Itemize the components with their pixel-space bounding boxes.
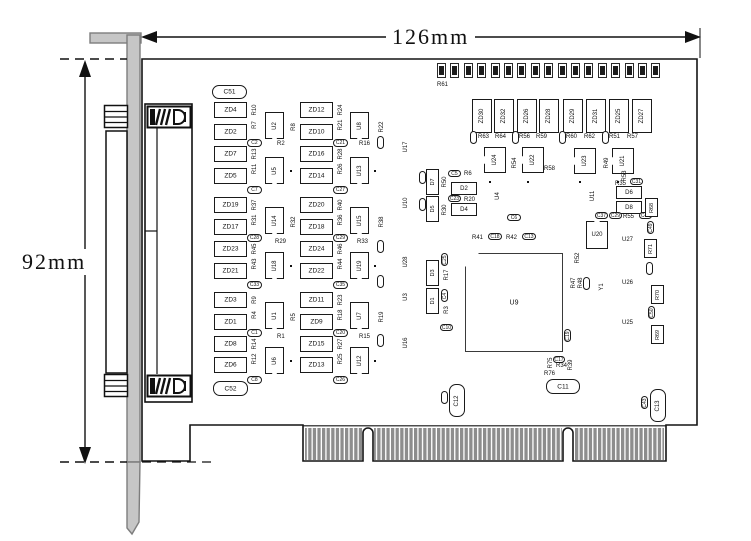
led-shape [584,63,593,78]
capv-shape [419,171,426,184]
component-d7: D7 [426,169,439,195]
component-r45: R45 [250,242,260,256]
component-u26: U26 [622,279,646,287]
component-zd17: ZD17 [214,219,247,235]
component-c31: C31 [630,178,643,185]
component-r44: R44 [336,257,346,271]
component-c37: C37 [595,212,608,219]
capv-shape [470,131,477,144]
dot-shape [374,265,376,267]
component-d3: D3 [426,260,439,286]
capv-shape [559,131,566,144]
component-c7: C7 [247,186,262,194]
component-c18: C18 [488,233,502,240]
component-zd21: ZD21 [214,263,247,279]
component-c43: C43 [641,396,648,409]
component-u13: U13 [350,157,369,184]
component-c4: C4 [441,289,448,302]
component-r21: R21 [336,118,346,132]
component-r29: R29 [275,238,299,246]
component-zd3: ZD3 [214,292,247,308]
component-u19: U19 [350,252,369,279]
component-u20: U20 [586,221,608,249]
component-zd16: ZD16 [300,146,333,162]
led-shape [450,63,459,78]
component-u12: U12 [350,347,369,374]
component-r76: R76 [544,370,568,378]
component-c52: C52 [213,381,248,396]
led-shape [638,63,647,78]
component-c33: C33 [247,281,262,289]
component-r25: R25 [336,352,346,366]
capv-shape [646,262,653,275]
component-r54: R54 [510,156,520,170]
component-zd14: ZD14 [300,168,333,184]
component-r28: R28 [336,147,346,161]
component-zd31: ZD31 [586,99,606,133]
component-r14: R14 [250,337,260,351]
dot-shape [290,265,292,267]
led-shape [558,63,567,78]
component-u25: U25 [622,319,646,327]
led-shape [464,63,473,78]
component-r6: R6 [464,170,488,178]
component-r70: R70 [651,285,664,304]
component-r30: R30 [440,203,450,217]
led-shape [625,63,634,78]
capv-shape [419,198,426,211]
component-u5: U5 [265,157,284,184]
component-u8: U8 [350,112,369,139]
component-zd25: ZD25 [609,99,629,133]
component-r31: R31 [250,213,260,227]
component-u23: U23 [574,148,596,174]
led-shape [491,63,500,78]
component-c11: C11 [546,379,580,394]
led-shape [598,63,607,78]
component-r2: R2 [277,140,301,148]
component-r43: R43 [250,257,260,271]
component-r13: R13 [250,147,260,161]
component-layer: C51ZD4ZD2ZD7ZD5ZD19ZD17ZD23ZD21ZD3ZD1ZD8… [0,0,751,541]
component-r3: R3 [442,303,452,317]
component-u4: U4 [493,189,503,203]
component-r37: R37 [250,198,260,212]
component-c25: C25 [441,253,448,266]
component-zd30: ZD30 [472,99,492,133]
component-r9: R9 [250,293,260,307]
height-dimension-label: 92mm [20,249,88,275]
component-c12: C12 [449,384,465,417]
component-r46: R46 [336,242,346,256]
led-shape [651,63,660,78]
component-r19: R19 [377,310,387,324]
component-zd23: ZD23 [214,241,247,257]
component-zd15: ZD15 [300,336,333,352]
component-r52: R52 [573,251,583,265]
component-zd24: ZD24 [300,241,333,257]
component-c29: C29 [609,212,622,219]
component-u27: U27 [622,236,646,244]
component-zd1: ZD1 [214,314,247,330]
capv-shape [602,131,609,144]
component-r49: R49 [602,156,612,170]
component-u1: U1 [265,302,284,329]
led-shape [531,63,540,78]
component-c20: C20 [333,329,348,337]
led-shape [571,63,580,78]
component-r61: R61 [437,81,461,89]
component-u14: U14 [265,207,284,234]
component-c8: C8 [247,376,262,384]
component-r4: R4 [250,308,260,322]
component-u18: U18 [265,252,284,279]
capv-shape [377,136,384,149]
component-zd26: ZD26 [517,99,537,133]
capv-shape [583,277,590,290]
component-c29: C29 [333,234,348,242]
component-c26: C26 [333,376,348,384]
component-r11: R11 [250,162,260,176]
component-zd27: ZD27 [632,99,652,133]
component-zd9: ZD9 [300,314,333,330]
component-u11: U11 [588,189,598,203]
component-r1: R1 [277,333,301,341]
component-r8: R8 [289,120,299,134]
component-zd12: ZD12 [300,102,333,118]
component-zd18: ZD18 [300,219,333,235]
led-shape [477,63,486,78]
led-shape [437,63,446,78]
component-r59: R59 [536,133,560,141]
component-c6: C6 [507,214,521,221]
component-c10: C10 [440,324,453,331]
component-zd6: ZD6 [214,357,247,373]
component-u16: U16 [401,336,411,350]
component-r68: R68 [645,198,658,217]
dot-shape [290,170,292,172]
component-u10: U10 [401,196,411,210]
component-r17: R17 [442,268,452,282]
component-u3: U3 [401,290,411,304]
capv-shape [512,131,519,144]
component-c23: C23 [448,195,461,202]
component-r69: R69 [651,325,664,344]
component-d2: D2 [451,182,477,195]
component-d6: D6 [616,186,642,199]
component-zd29: ZD29 [563,99,583,133]
component-r5: R5 [289,310,299,324]
component-c21: C21 [333,139,348,147]
component-d1: D1 [426,288,439,314]
component-r12: R12 [250,352,260,366]
component-r7: R7 [250,118,260,132]
component-u9: U9 [465,253,563,352]
component-c5: C5 [448,170,461,177]
component-zd20: ZD20 [300,197,333,213]
component-r38: R38 [377,215,387,229]
component-c28: C28 [247,234,262,242]
component-c50: C50 [648,306,655,319]
component-r36: R36 [336,213,346,227]
component-zd8: ZD8 [214,336,247,352]
component-u22: U22 [522,147,544,173]
component-r18: R18 [336,308,346,322]
component-zd4: ZD4 [214,102,247,118]
component-c2: C2 [247,139,262,147]
capv-shape [441,391,448,404]
led-shape [544,63,553,78]
component-r58: R58 [544,165,568,173]
component-zd22: ZD22 [300,263,333,279]
component-zd2: ZD2 [214,124,247,140]
component-zd5: ZD5 [214,168,247,184]
component-r27: R27 [336,337,346,351]
component-d4: D4 [451,203,477,216]
dot-shape [579,181,581,183]
component-zd7: ZD7 [214,146,247,162]
component-zd13: ZD13 [300,357,333,373]
component-u2: U2 [265,112,284,139]
component-c13: C13 [522,233,536,240]
led-shape [517,63,526,78]
led-shape [504,63,513,78]
component-r71: R71 [644,239,657,258]
component-c35: C35 [333,281,348,289]
component-zd10: ZD10 [300,124,333,140]
dot-shape [527,181,529,183]
capv-shape [377,275,384,288]
component-zd28: ZD28 [539,99,559,133]
dot-shape [374,170,376,172]
component-c13: C13 [650,389,666,422]
component-r50: R50 [440,175,450,189]
component-r10: R10 [250,103,260,117]
capv-shape [377,334,384,347]
dot-shape [489,181,491,183]
dot-shape [374,360,376,362]
component-r40: R40 [336,198,346,212]
component-c27: C27 [333,186,348,194]
component-c49: C49 [647,221,654,234]
component-u15: U15 [350,207,369,234]
component-u7: U7 [350,302,369,329]
component-u6: U6 [265,347,284,374]
component-u28: U28 [401,255,411,269]
component-y1: Y1 [597,280,607,294]
component-c51: C51 [212,85,247,99]
component-r26: R26 [336,162,346,176]
component-c19: C19 [564,329,571,342]
component-zd19: ZD19 [214,197,247,213]
component-r32: R32 [289,215,299,229]
component-zd32: ZD32 [494,99,514,133]
component-zd11: ZD11 [300,292,333,308]
component-u17: U17 [401,140,411,154]
component-r23: R23 [336,293,346,307]
width-dimension-label: 126mm [386,24,475,50]
pci-card-drawing: C51ZD4ZD2ZD7ZD5ZD19ZD17ZD23ZD21ZD3ZD1ZD8… [0,0,751,541]
component-c1: C1 [247,329,262,337]
component-r22: R22 [377,120,387,134]
dot-shape [290,360,292,362]
component-r57: R57 [627,133,651,141]
capv-shape [377,240,384,253]
led-shape [611,63,620,78]
component-d5: D5 [426,196,439,222]
component-r24: R24 [336,103,346,117]
